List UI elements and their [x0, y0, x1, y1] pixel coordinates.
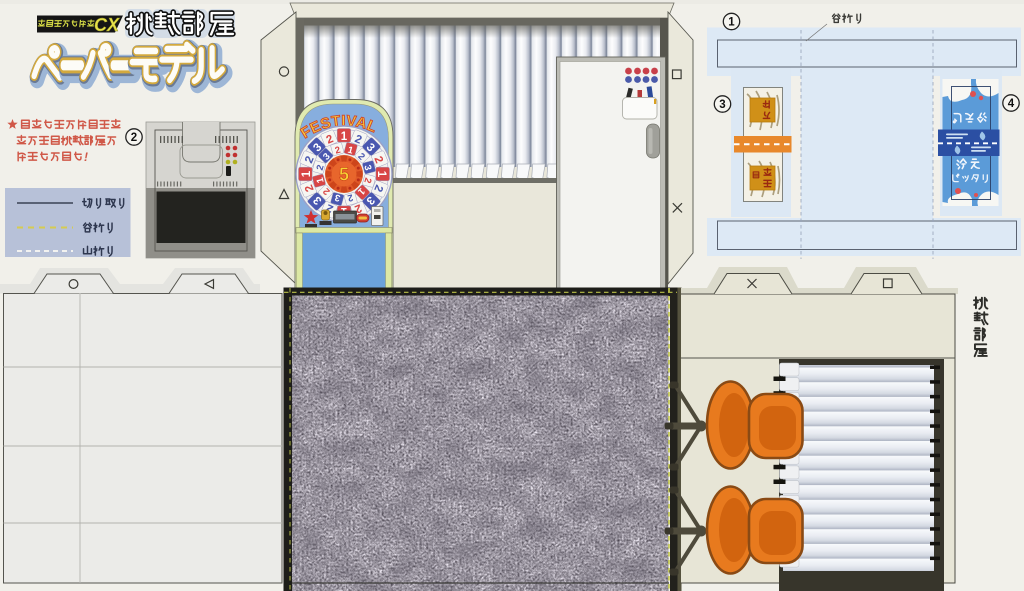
svg-text:3: 3 — [719, 99, 725, 111]
svg-text:CX: CX — [94, 15, 120, 35]
svg-text:4: 4 — [1008, 98, 1015, 110]
svg-text:1: 1 — [375, 171, 387, 178]
svg-text:1: 1 — [301, 170, 313, 177]
svg-text:!: ! — [84, 150, 88, 164]
svg-text:5: 5 — [339, 165, 349, 185]
svg-text:2: 2 — [131, 132, 137, 144]
svg-text:1: 1 — [728, 17, 735, 29]
svg-text:1: 1 — [341, 131, 348, 143]
